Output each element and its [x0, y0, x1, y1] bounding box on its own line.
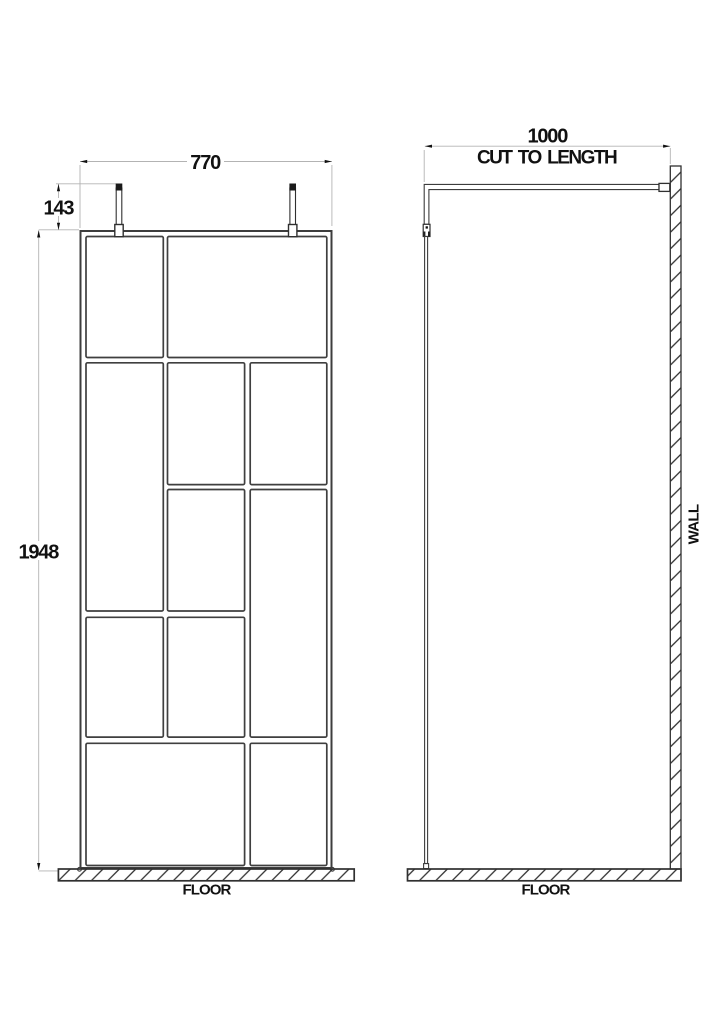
svg-text:770: 770: [190, 152, 221, 174]
svg-text:FLOOR: FLOOR: [522, 882, 571, 899]
svg-text:1948: 1948: [18, 542, 59, 564]
svg-text:WALL: WALL: [686, 504, 703, 544]
svg-text:FLOOR: FLOOR: [183, 882, 232, 899]
svg-text:143: 143: [44, 197, 75, 219]
svg-text:1000: 1000: [527, 125, 568, 147]
svg-text:CUT TO LENGTH: CUT TO LENGTH: [477, 147, 617, 168]
